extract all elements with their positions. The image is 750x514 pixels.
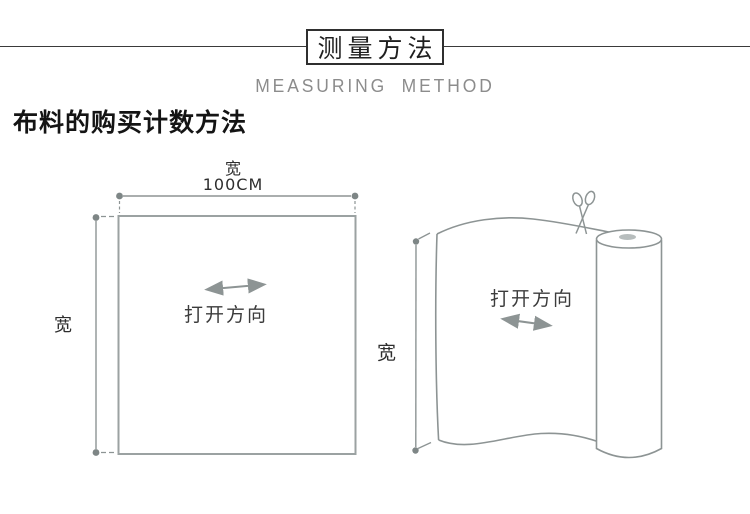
measuring-method-infographic: 测量方法 MEASURING METHOD 布料的购买计数方法 [0,0,750,514]
left-width-value: 100CM [187,175,279,194]
left-side-width-label: 宽 [54,311,72,337]
roll-dimension-line [412,233,431,454]
open-direction-arrow-left [207,285,264,290]
left-dimension-line [93,214,114,456]
diagram-canvas [0,0,750,514]
right-side-width-label: 宽 [377,338,396,365]
left-open-direction-label: 打开方向 [155,300,297,327]
fabric-sheet [436,218,611,445]
top-dimension-line [116,193,358,213]
roll-core-hole [619,234,636,240]
open-direction-arrow-right [503,319,550,326]
fabric-roll [597,230,662,458]
fabric-roll-diagram [412,190,661,457]
right-open-direction-label: 打开方向 [461,284,603,311]
fabric-square [119,216,356,454]
